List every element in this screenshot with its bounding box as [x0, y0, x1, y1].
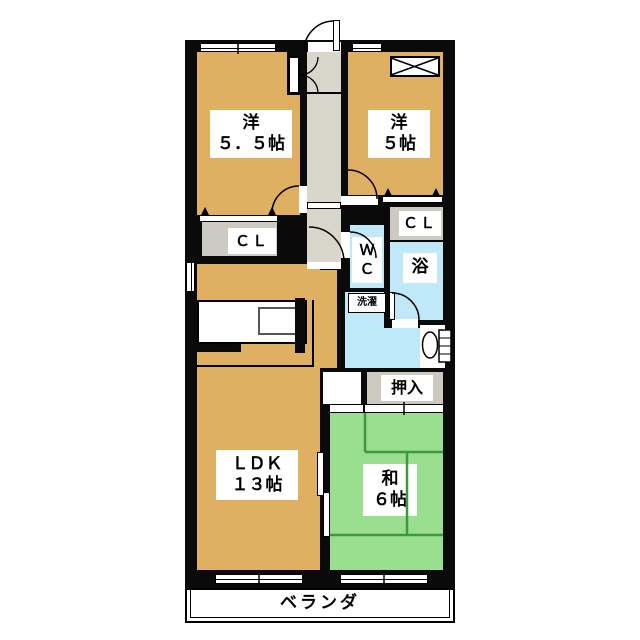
corridor-door — [307, 202, 341, 209]
corridor-ldk-opening — [307, 262, 341, 269]
label-west-bedroom-2: 洋 ５帖 — [368, 110, 430, 158]
label-wc: Ｗ Ｃ — [352, 237, 382, 283]
west1-size: ５．５帖 — [217, 134, 285, 155]
wc-line1: Ｗ — [359, 241, 374, 260]
fusuma-panel-2 — [323, 492, 330, 537]
veranda-text: ベランダ — [280, 593, 360, 614]
window-bottom-japanese — [340, 574, 428, 584]
japanese-room-sliding-door — [330, 404, 363, 413]
bedroom2-door-opening — [341, 196, 378, 205]
room-ldk-east-strip — [320, 270, 337, 368]
japanese-name: 和 — [382, 469, 399, 490]
west1-name: 洋 — [243, 113, 260, 134]
floor-plan: ベランダ 洋 ５．５帖 洋 ５帖 ＣＬ ＣＬ Ｗ Ｃ 浴 洗濯 押入 ＬＤＫ １… — [0, 0, 640, 640]
label-west-bedroom-1: 洋 ５．５帖 — [210, 110, 292, 158]
bath-text: 浴 — [412, 257, 429, 278]
fusuma-panel-1 — [317, 452, 324, 496]
window-top-bedroom1 — [200, 43, 276, 52]
ldk-size: １３帖 — [232, 475, 283, 496]
shoe-cabinet — [288, 56, 300, 94]
west2-name: 洋 — [391, 113, 408, 134]
window-top-bedroom2 — [352, 43, 382, 52]
label-closet-right: ＣＬ — [399, 211, 441, 236]
kitchen-sink — [258, 307, 297, 335]
closet-left-sliding-door — [200, 215, 277, 222]
closet-right-text: ＣＬ — [403, 214, 437, 233]
oshiire-sliding-door — [365, 404, 443, 413]
wc-door-opening — [341, 232, 350, 258]
kitchen-wall-stub-right — [295, 298, 305, 353]
window-bottom-ldk — [215, 574, 303, 584]
veranda-label: ベランダ — [255, 592, 385, 616]
label-ldk: ＬＤＫ １３帖 — [216, 450, 298, 500]
label-bath: 浴 — [403, 253, 437, 283]
label-oshiire: 押入 — [381, 375, 433, 401]
closet-right-sliding-door — [383, 196, 442, 203]
wc-line2: Ｃ — [359, 260, 374, 279]
corridor — [307, 52, 341, 262]
bath-door-opening — [392, 319, 418, 328]
label-japanese-room: 和 ６帖 — [363, 464, 417, 516]
label-closet-left: ＣＬ — [228, 228, 276, 254]
room-washroom-lower — [384, 328, 420, 368]
japanese-size: ６帖 — [373, 490, 407, 511]
bedroom1-door-opening — [299, 186, 307, 213]
bath-door-leaf — [389, 292, 395, 320]
window-left-ldk — [186, 262, 195, 292]
ldk-name: ＬＤＫ — [232, 454, 283, 475]
entrance-door-leaf — [333, 20, 340, 51]
closet-left-text: ＣＬ — [235, 232, 269, 251]
pipe-space-box — [390, 56, 440, 77]
laundry-text: 洗濯 — [357, 297, 377, 310]
oshiire-text: 押入 — [391, 378, 423, 398]
label-laundry: 洗濯 — [348, 293, 386, 313]
kitchen-wall-stub-left — [197, 344, 241, 352]
oshiire-landing — [323, 372, 361, 404]
toilet-nook — [420, 325, 445, 368]
west2-size: ５帖 — [382, 134, 416, 155]
